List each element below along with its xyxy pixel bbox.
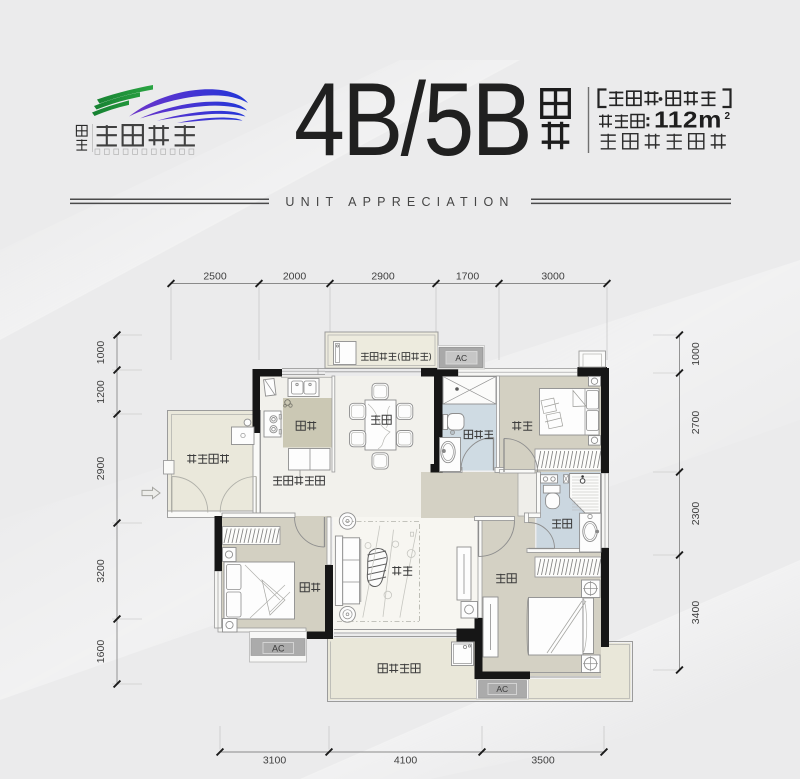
svg-text:2700: 2700 (690, 411, 702, 435)
svg-text:AC: AC (272, 643, 285, 653)
svg-text:1600: 1600 (95, 640, 107, 664)
svg-text:1000: 1000 (95, 341, 107, 365)
svg-text:112m: 112m (654, 107, 722, 133)
svg-text:4B/5B: 4B/5B (294, 62, 530, 178)
svg-text:AC: AC (455, 353, 467, 363)
svg-text:4100: 4100 (394, 755, 418, 767)
svg-text:3400: 3400 (690, 601, 702, 625)
svg-text:AC: AC (496, 684, 508, 694)
svg-text:2000: 2000 (283, 271, 307, 283)
svg-text:3100: 3100 (263, 755, 287, 767)
svg-text:1000: 1000 (690, 342, 702, 366)
svg-text:3500: 3500 (531, 755, 555, 767)
svg-text:2900: 2900 (95, 457, 107, 481)
svg-text:2500: 2500 (203, 271, 227, 283)
svg-text:2: 2 (725, 111, 731, 122)
svg-text:3000: 3000 (541, 271, 565, 283)
svg-text:1700: 1700 (456, 271, 480, 283)
svg-text:UNIT APPRECIATION: UNIT APPRECIATION (285, 195, 514, 209)
svg-text:2300: 2300 (690, 502, 702, 526)
svg-text:2900: 2900 (371, 271, 395, 283)
svg-text:1200: 1200 (95, 380, 107, 404)
svg-text:3200: 3200 (95, 559, 107, 583)
